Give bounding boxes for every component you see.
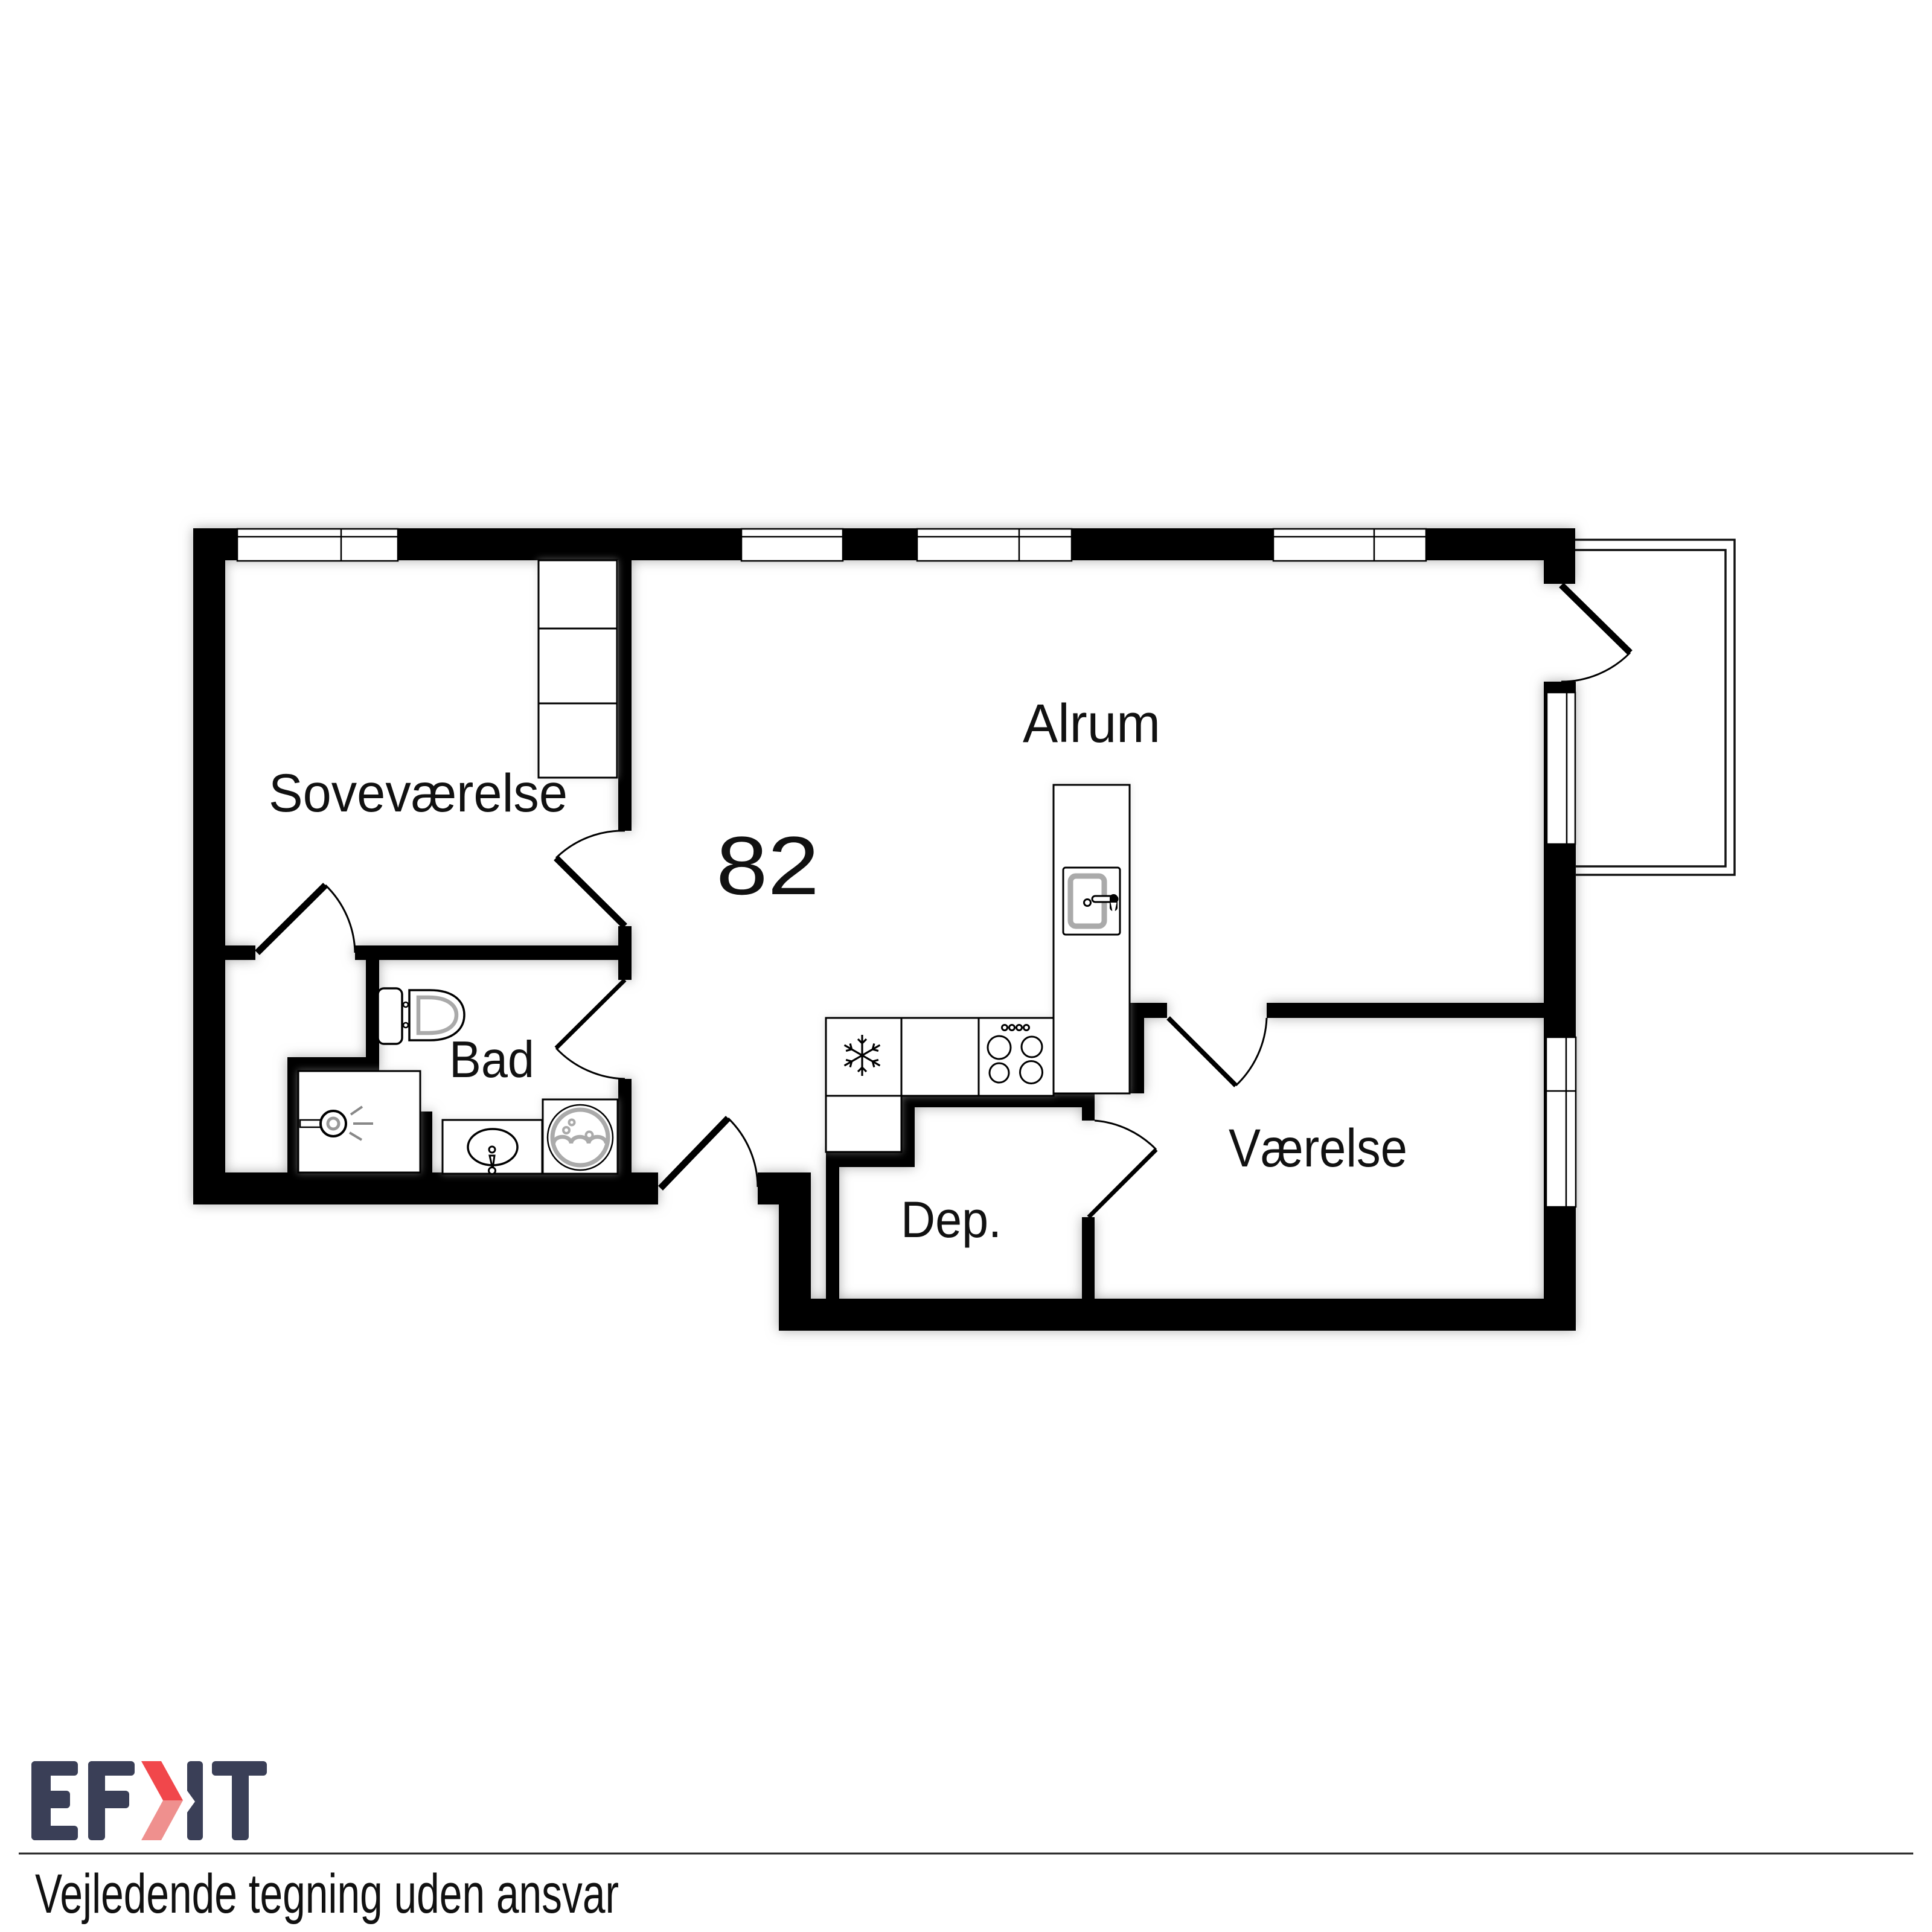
svg-text:Dep.: Dep. <box>901 1191 1002 1248</box>
svg-text:Alrum: Alrum <box>1023 694 1160 754</box>
svg-text:82: 82 <box>716 820 819 912</box>
svg-text:Bad: Bad <box>449 1031 534 1089</box>
svg-text:Vejledende tegning uden ansvar: Vejledende tegning uden ansvar <box>35 1863 619 1925</box>
svg-text:Soveværelse: Soveværelse <box>269 763 568 823</box>
svg-text:Værelse: Værelse <box>1229 1118 1407 1178</box>
